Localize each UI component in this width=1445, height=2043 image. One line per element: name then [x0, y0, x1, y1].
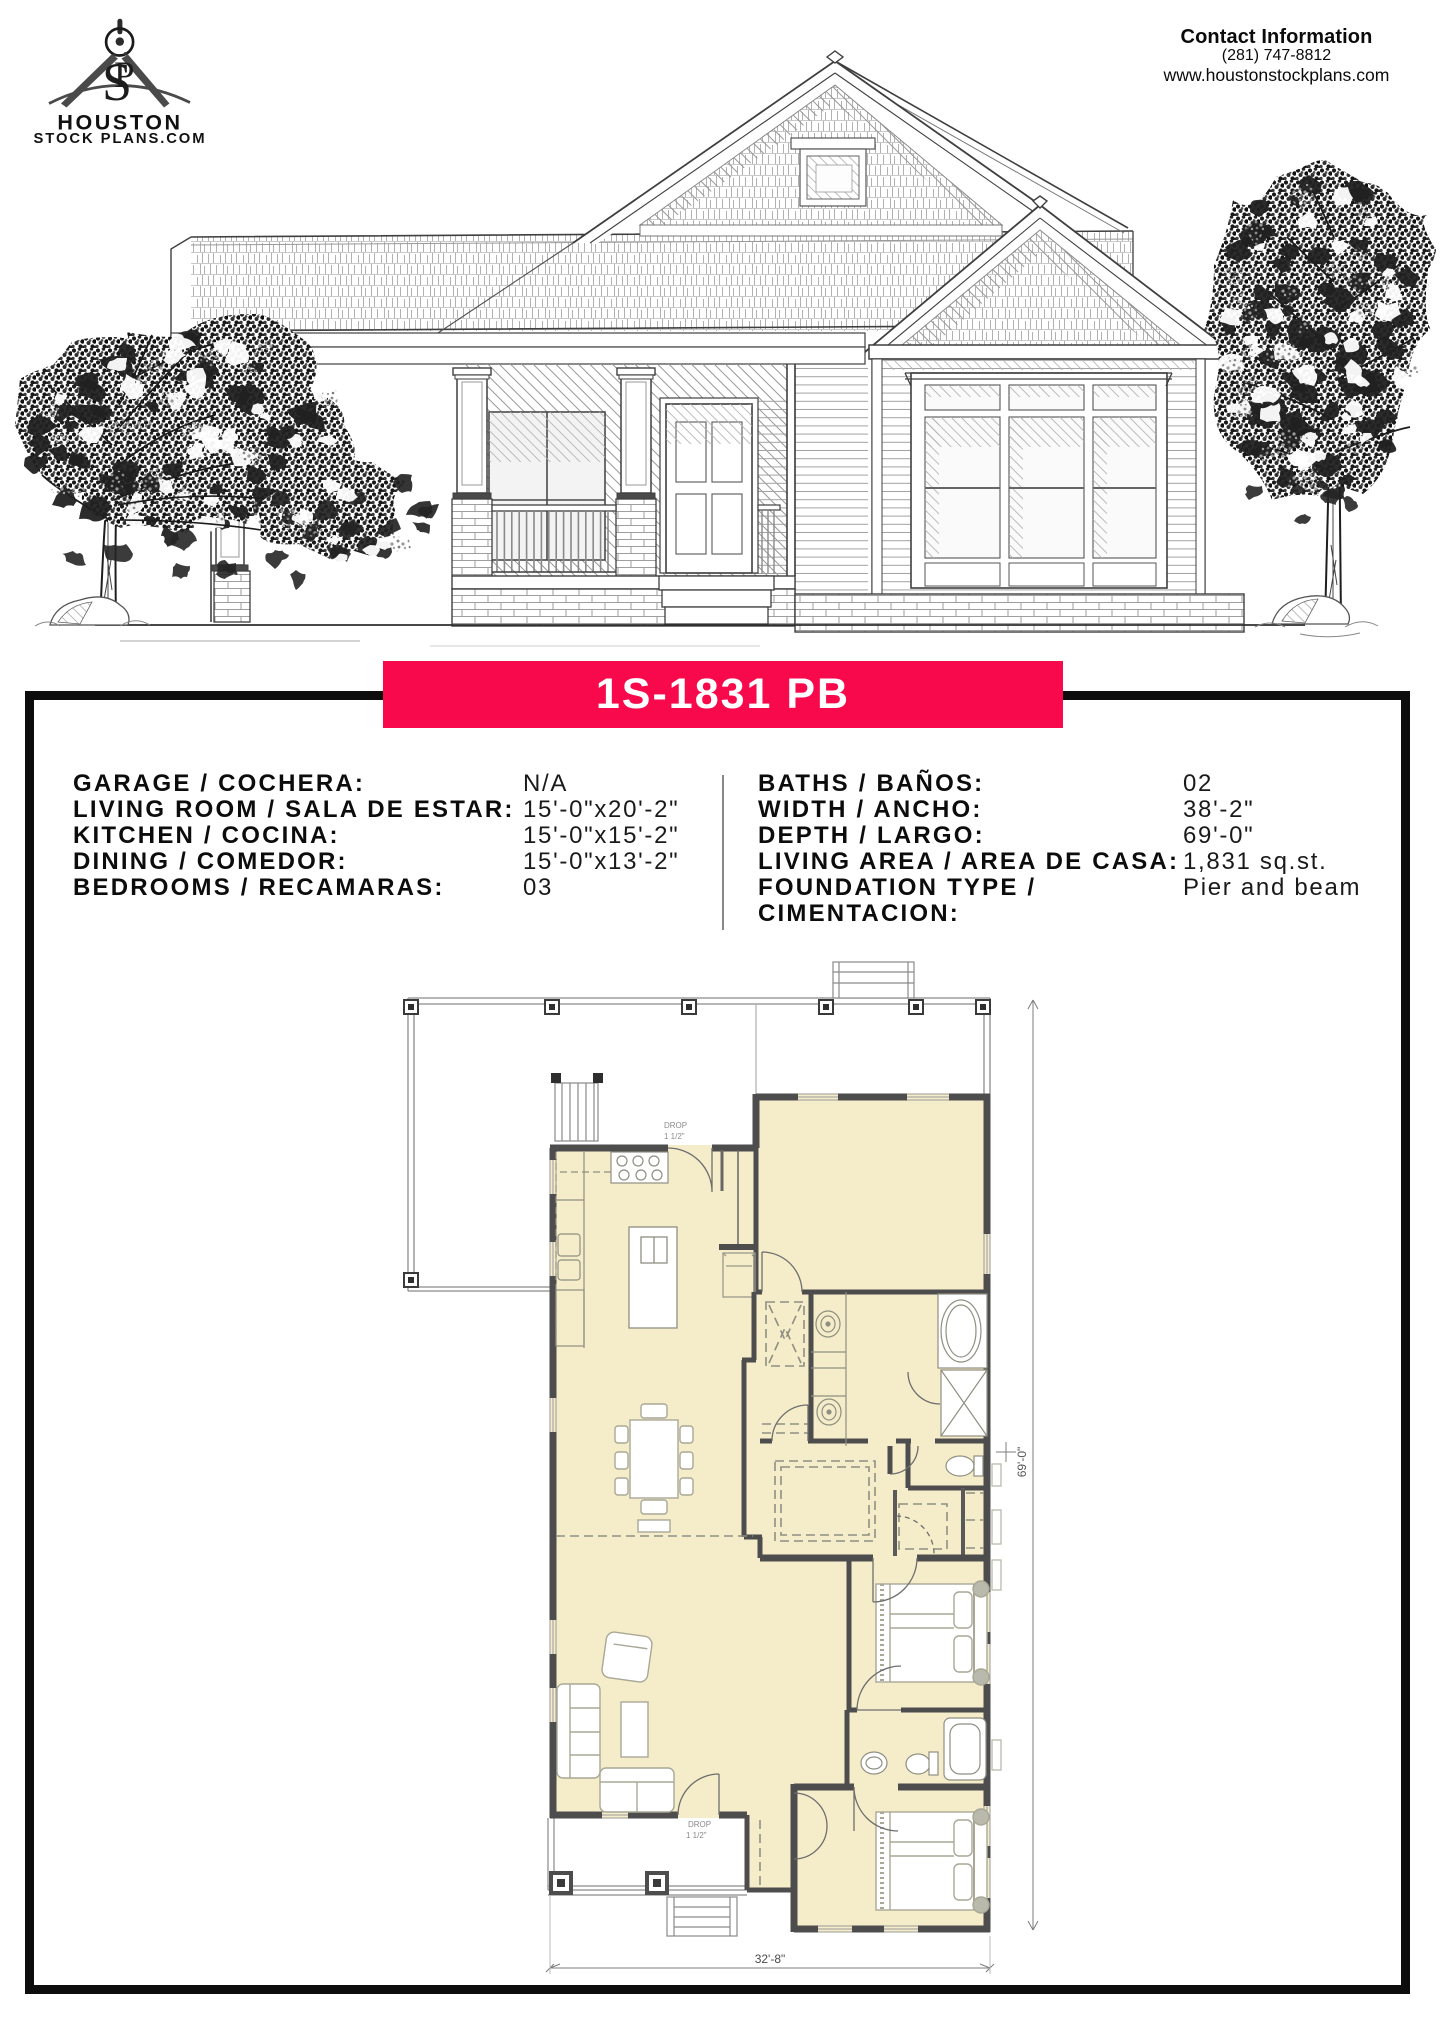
svg-text:DROP: DROP [688, 1820, 711, 1829]
svg-text:32'-8": 32'-8" [755, 1952, 786, 1966]
svg-text:1 1/2": 1 1/2" [664, 1132, 685, 1141]
svg-text:P: P [114, 55, 135, 96]
svg-text:69'-0": 69'-0" [1015, 1447, 1029, 1478]
svg-text:STOCK PLANS.COM: STOCK PLANS.COM [34, 131, 207, 147]
svg-text:1 1/2": 1 1/2" [686, 1831, 707, 1840]
svg-text:DROP: DROP [664, 1121, 687, 1130]
